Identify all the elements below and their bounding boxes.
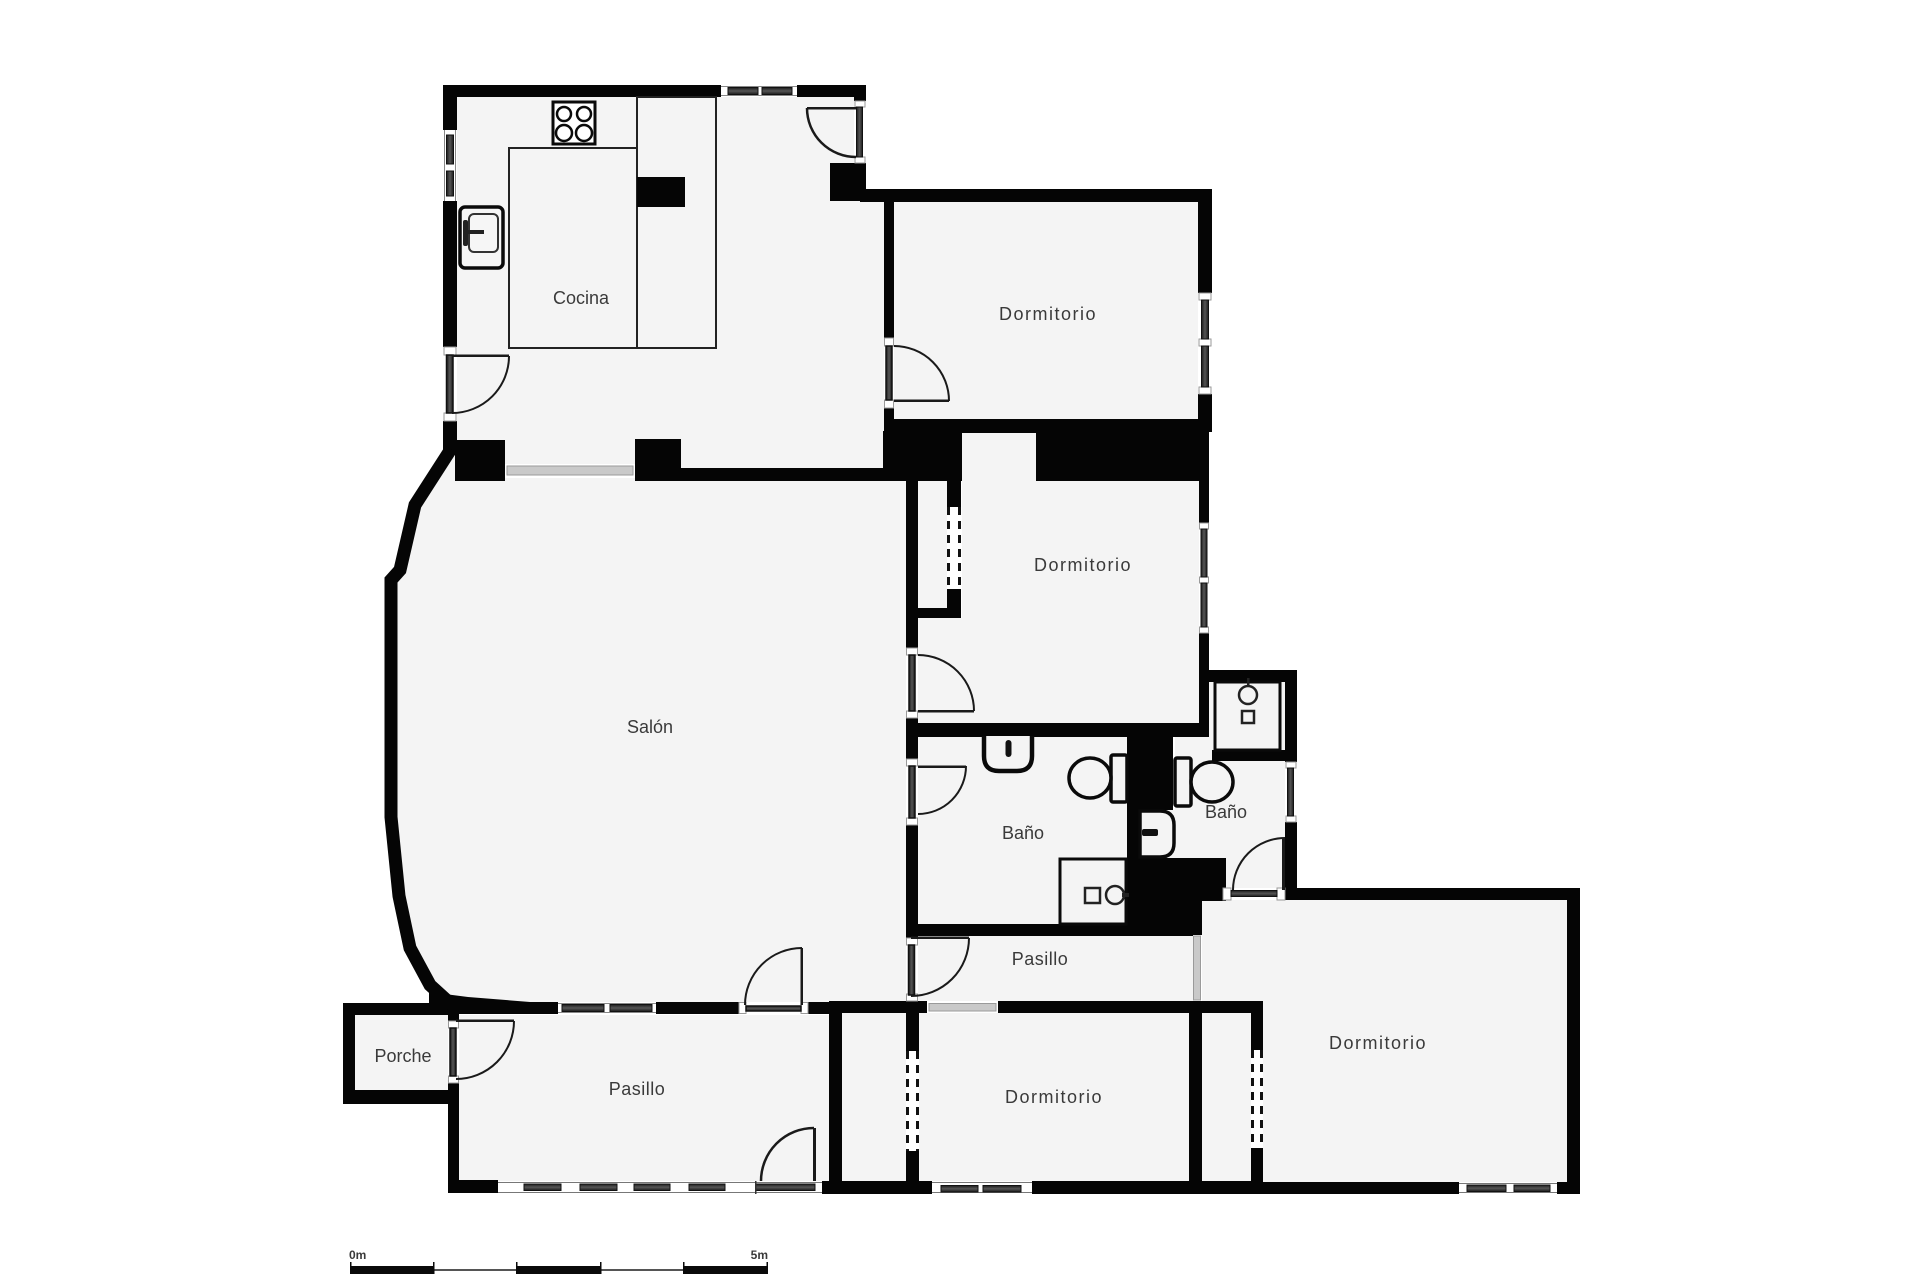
svg-text:Salón: Salón (627, 717, 673, 737)
svg-text:Dormitorio: Dormitorio (999, 304, 1097, 324)
svg-text:Dormitorio: Dormitorio (1329, 1033, 1427, 1053)
svg-text:Cocina: Cocina (553, 288, 610, 308)
svg-text:Pasillo: Pasillo (609, 1079, 666, 1099)
svg-text:Baño: Baño (1002, 823, 1044, 843)
svg-text:Porche: Porche (374, 1046, 431, 1066)
svg-text:Dormitorio: Dormitorio (1005, 1087, 1103, 1107)
svg-text:0m: 0m (349, 1248, 366, 1262)
svg-text:Pasillo: Pasillo (1012, 949, 1069, 969)
svg-text:Baño: Baño (1205, 802, 1247, 822)
svg-text:5m: 5m (751, 1248, 768, 1262)
svg-text:Dormitorio: Dormitorio (1034, 555, 1132, 575)
